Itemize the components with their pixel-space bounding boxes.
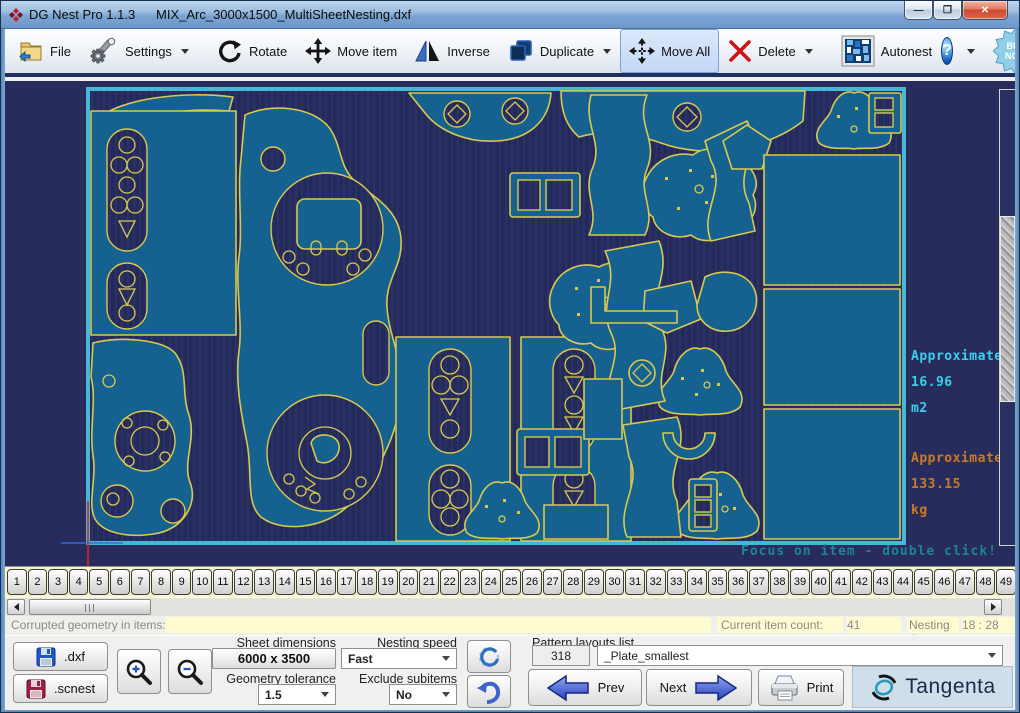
- dropdown-arrow-icon: [988, 653, 996, 658]
- refresh-nesting-button[interactable]: [467, 640, 511, 673]
- sheet-page-button[interactable]: 25: [502, 569, 522, 595]
- sheet-page-button[interactable]: 37: [749, 569, 769, 595]
- toolbar: File Settings: [5, 29, 1017, 77]
- sheet-page-button[interactable]: 17: [337, 569, 357, 595]
- gear-wrench-icon: [89, 36, 119, 66]
- move-item-icon: [305, 38, 331, 64]
- sheet-page-button[interactable]: 40: [811, 569, 831, 595]
- sheet-page-button[interactable]: 21: [419, 569, 439, 595]
- sheet-page-button[interactable]: 5: [89, 569, 109, 595]
- settings-button[interactable]: Settings: [80, 29, 198, 73]
- nested-part[interactable]: [91, 339, 192, 535]
- sheet-page-button[interactable]: 2: [28, 569, 48, 595]
- app-icon: [8, 7, 24, 23]
- autonest-icon: [841, 35, 875, 67]
- dropdown-arrow-icon: [442, 656, 450, 661]
- save-dxf-button[interactable]: .dxf: [13, 642, 108, 671]
- sheet-page-button[interactable]: 16: [316, 569, 336, 595]
- approximate-area-readout: Approximate 16.96 m2: [911, 344, 1011, 422]
- sheet-page-button[interactable]: 32: [646, 569, 666, 595]
- title-bar[interactable]: DG Nest Pro 1.1.3 MIX_Arc_3000x1500_Mult…: [1, 1, 1020, 29]
- sheet-page-button[interactable]: 1: [7, 569, 27, 595]
- zoom-in-button[interactable]: [117, 649, 161, 694]
- zoom-in-icon: [125, 658, 153, 686]
- sheet-page-button[interactable]: 6: [110, 569, 130, 595]
- file-button[interactable]: File: [9, 29, 80, 73]
- sheet-page-button[interactable]: 8: [151, 569, 171, 595]
- autonest-button[interactable]: Autonest: [832, 29, 941, 73]
- spinner-icon: [477, 645, 501, 669]
- sheet-dimensions-value[interactable]: 6000 x 3500: [212, 648, 336, 669]
- inverse-button[interactable]: Inverse: [406, 29, 499, 73]
- app-window: DG Nest Pro 1.1.3 MIX_Arc_3000x1500_Mult…: [0, 0, 1020, 713]
- zoom-out-button[interactable]: [168, 649, 212, 694]
- focus-hint-text: Focus on item - double click!: [741, 544, 997, 559]
- sheet-page-button[interactable]: 3: [48, 569, 68, 595]
- sheet-page-button[interactable]: 44: [893, 569, 913, 595]
- sheet-page-button[interactable]: 14: [275, 569, 295, 595]
- sheet-page-button[interactable]: 24: [481, 569, 501, 595]
- scroll-right-arrow[interactable]: [984, 599, 1002, 615]
- prev-button[interactable]: Prev: [528, 669, 642, 706]
- sheet-page-button[interactable]: 20: [399, 569, 419, 595]
- dropdown-arrow-icon: [181, 49, 189, 54]
- pattern-count-field[interactable]: 318: [532, 645, 590, 666]
- dropdown-arrow-icon: [442, 692, 450, 697]
- sheet-page-button[interactable]: 13: [254, 569, 274, 595]
- sheet-page-button[interactable]: 48: [976, 569, 996, 595]
- duplicate-button[interactable]: Duplicate: [499, 29, 620, 73]
- sheet-page-button[interactable]: 38: [770, 569, 790, 595]
- rotate-button[interactable]: Rotate: [208, 29, 296, 73]
- sheet-page-button[interactable]: 46: [934, 569, 954, 595]
- print-button[interactable]: Print: [758, 669, 844, 706]
- item-count-value: 41: [847, 617, 901, 633]
- sheet-page-button[interactable]: 29: [584, 569, 604, 595]
- sheet-page-button[interactable]: 28: [563, 569, 583, 595]
- window-frame-left: [1, 29, 5, 713]
- nesting-time-label: Nesting time:: [907, 617, 959, 633]
- delete-button[interactable]: Delete: [719, 29, 822, 73]
- sheet-page-button[interactable]: 7: [131, 569, 151, 595]
- sheet-page-button[interactable]: 47: [955, 569, 975, 595]
- move-all-icon: [629, 38, 655, 64]
- floppy-red-icon: [26, 679, 46, 699]
- sheet-page-button[interactable]: 23: [460, 569, 480, 595]
- move-item-button[interactable]: Move item: [296, 29, 406, 73]
- dropdown-arrow-icon: [321, 692, 329, 697]
- close-button[interactable]: ✕: [962, 1, 1008, 20]
- help-dropdown[interactable]: [953, 29, 980, 73]
- pattern-layouts-select[interactable]: _Plate_smallest: [597, 645, 1003, 666]
- duplicate-icon: [508, 38, 534, 64]
- sheet-page-button[interactable]: 19: [378, 569, 398, 595]
- document-title: MIX_Arc_3000x1500_MultiSheetNesting.dxf: [156, 7, 411, 22]
- floppy-blue-icon: [36, 647, 56, 667]
- tangenta-logo-icon: [869, 672, 899, 702]
- sheet-page-button[interactable]: 4: [69, 569, 89, 595]
- exclude-subitems-select[interactable]: No: [389, 684, 457, 705]
- sheet-page-button[interactable]: 22: [440, 569, 460, 595]
- status-bar: Corrupted geometry in items: Current ite…: [5, 616, 1017, 635]
- sheet-page-button[interactable]: 33: [667, 569, 687, 595]
- minimize-button[interactable]: —: [904, 1, 933, 20]
- sheet-page-button[interactable]: 26: [522, 569, 542, 595]
- geometry-tolerance-select[interactable]: 1.5: [258, 684, 336, 705]
- sheet-page-button[interactable]: 11: [213, 569, 233, 595]
- dropdown-arrow-icon: [603, 49, 611, 54]
- dropdown-arrow-icon: [805, 49, 813, 54]
- sheet-page-button[interactable]: 30: [605, 569, 625, 595]
- sheet-page-button[interactable]: 36: [728, 569, 748, 595]
- vertical-scrollbar-thumb[interactable]: [1000, 216, 1015, 402]
- bottom-control-panel: .dxf .scnest Sheet di: [5, 635, 1017, 710]
- vertical-scrollbar[interactable]: [999, 89, 1016, 546]
- folder-icon: [18, 38, 44, 64]
- app-title: DG Nest Pro 1.1.3: [29, 7, 135, 22]
- nesting-canvas[interactable]: .p{fill:#15618f;stroke:#d9c94f;stroke-wi…: [5, 81, 1017, 566]
- zoom-out-icon: [176, 658, 204, 686]
- sheet-page-button[interactable]: 45: [914, 569, 934, 595]
- approximate-weight-readout: Approximate 133.15 kg: [911, 446, 1011, 524]
- sheet-page-button[interactable]: 42: [852, 569, 872, 595]
- sheet-page-button[interactable]: 10: [192, 569, 212, 595]
- sheet-page-button[interactable]: 34: [687, 569, 707, 595]
- sheet-page-button[interactable]: 31: [625, 569, 645, 595]
- horizontal-scrollbar[interactable]: [5, 597, 1017, 616]
- sheet-page-button[interactable]: 9: [172, 569, 192, 595]
- save-scnest-button[interactable]: .scnest: [13, 674, 108, 703]
- next-button[interactable]: Next: [646, 669, 752, 706]
- nesting-speed-select[interactable]: Fast: [341, 648, 457, 669]
- window-frame-right: [1015, 29, 1019, 713]
- sheet-page-button[interactable]: 41: [831, 569, 851, 595]
- tangenta-brand[interactable]: Tangenta: [852, 666, 1013, 708]
- scroll-left-arrow[interactable]: [7, 599, 25, 615]
- delete-x-icon: [728, 39, 752, 63]
- inverse-icon: [415, 39, 441, 63]
- move-all-button[interactable]: Move All: [620, 29, 719, 73]
- nested-part[interactable]: [764, 93, 901, 539]
- sheet-page-button[interactable]: 39: [790, 569, 810, 595]
- next-arrow-icon: [694, 673, 738, 703]
- sheet-page-button[interactable]: 43: [873, 569, 893, 595]
- undo-arrow-icon: [476, 679, 502, 705]
- dropdown-arrow-icon: [967, 49, 975, 54]
- sheet-page-button[interactable]: 27: [543, 569, 563, 595]
- corrupted-geometry-field: [165, 617, 711, 633]
- sheet-page-button[interactable]: 18: [357, 569, 377, 595]
- sheet-page-button[interactable]: 12: [234, 569, 254, 595]
- sheet-page-button[interactable]: 35: [708, 569, 728, 595]
- help-button[interactable]: ?: [941, 37, 953, 65]
- printer-icon: [769, 674, 799, 702]
- horizontal-scrollbar-thumb[interactable]: [29, 599, 151, 615]
- undo-button[interactable]: [467, 675, 511, 708]
- rotate-icon: [217, 38, 243, 64]
- nested-part[interactable]: [91, 95, 236, 335]
- sheet-page-button[interactable]: 15: [296, 569, 316, 595]
- thumb-grip-icon: [85, 604, 95, 612]
- item-count-label: Current item count:: [717, 617, 843, 633]
- corrupted-geometry-label: Corrupted geometry in items:: [11, 618, 166, 632]
- prev-arrow-icon: [546, 673, 590, 703]
- maximize-button[interactable]: ❐: [933, 1, 962, 20]
- nesting-time-value: 18 : 28: [962, 617, 1017, 633]
- nesting-sheet-drawing[interactable]: .p{fill:#15618f;stroke:#d9c94f;stroke-wi…: [5, 81, 1017, 566]
- sheet-pager: 1234567891011121314151617181920212223242…: [5, 566, 1017, 597]
- sheet-page-button[interactable]: 49: [996, 569, 1016, 595]
